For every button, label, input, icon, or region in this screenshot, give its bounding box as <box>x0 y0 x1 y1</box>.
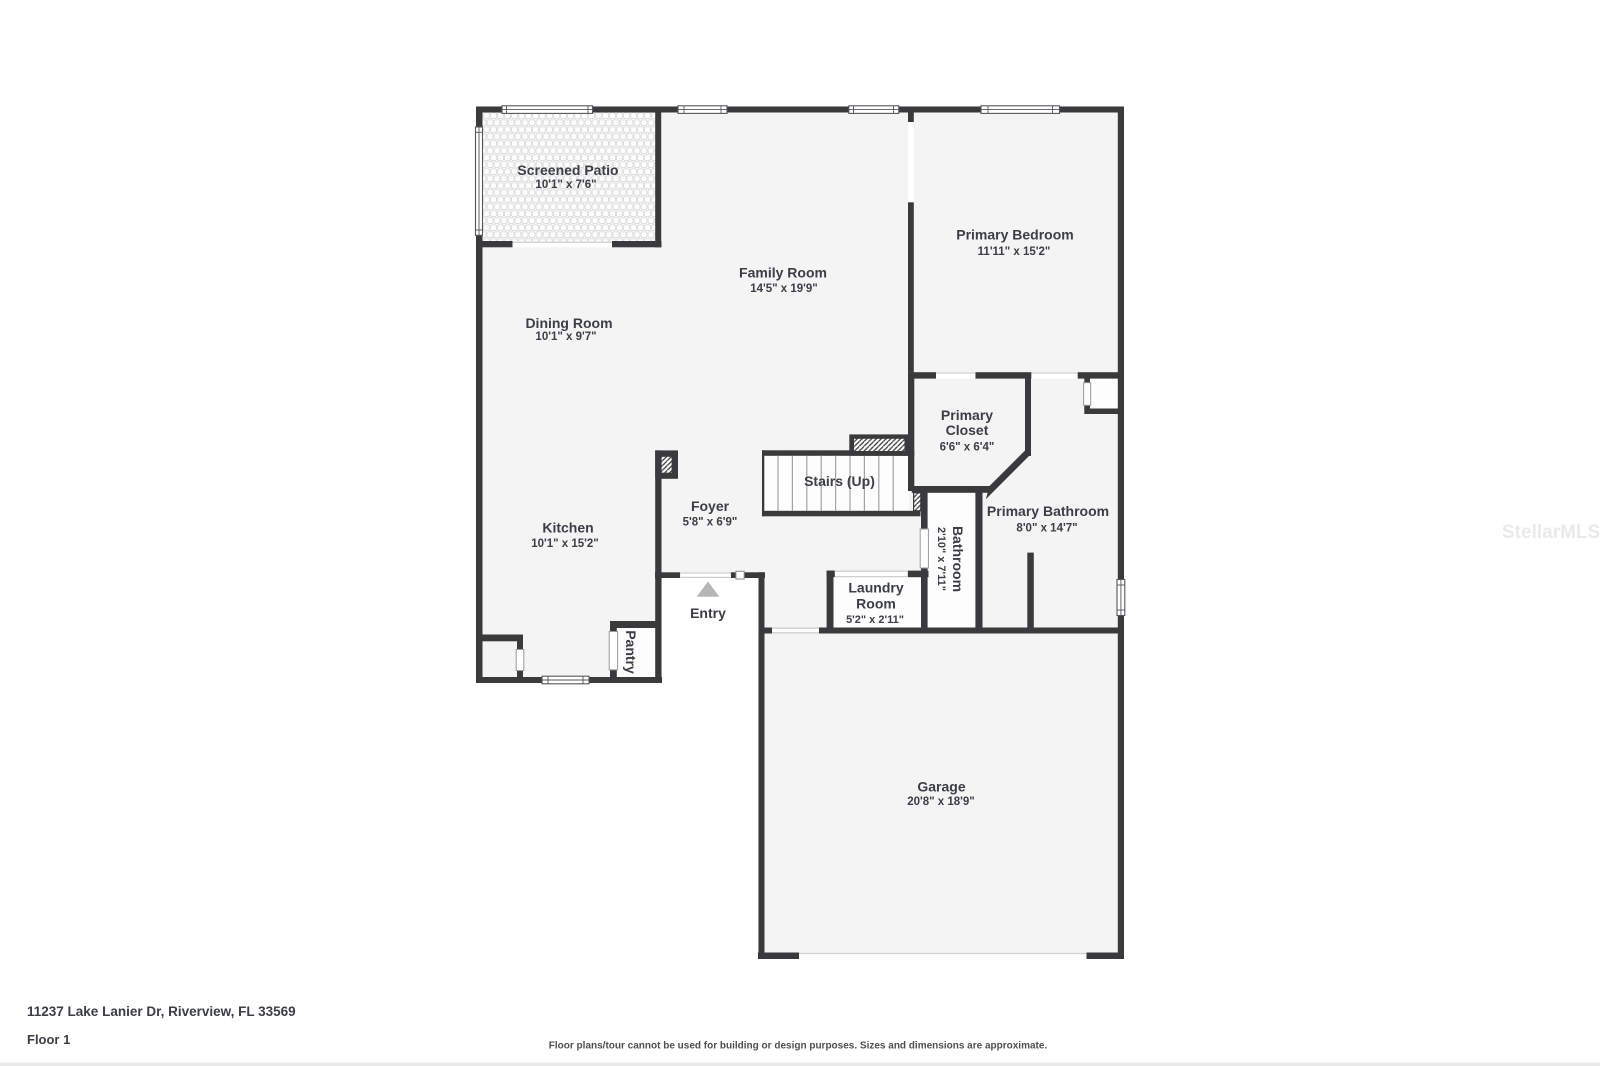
svg-text:Laundry: Laundry <box>848 580 903 596</box>
svg-text:Dining Room: Dining Room <box>525 315 612 331</box>
svg-text:11'11" x 15'2": 11'11" x 15'2" <box>978 246 1051 258</box>
svg-text:Primary: Primary <box>941 407 993 423</box>
svg-text:10'1" x 7'6": 10'1" x 7'6" <box>535 179 596 191</box>
svg-text:Primary Bathroom: Primary Bathroom <box>987 503 1109 519</box>
svg-text:Kitchen: Kitchen <box>542 520 593 536</box>
svg-text:Floor plans/tour cannot be use: Floor plans/tour cannot be used for buil… <box>549 1041 1048 1052</box>
svg-text:Screened Patio: Screened Patio <box>517 162 618 178</box>
svg-text:Room: Room <box>856 596 896 612</box>
svg-text:Foyer: Foyer <box>691 498 730 514</box>
svg-text:14'5" x 19'9": 14'5" x 19'9" <box>750 283 818 295</box>
svg-text:Primary Bedroom: Primary Bedroom <box>956 227 1073 243</box>
svg-text:Closet: Closet <box>946 422 989 438</box>
svg-text:5'8" x 6'9": 5'8" x 6'9" <box>683 517 738 529</box>
svg-text:Garage: Garage <box>917 779 965 795</box>
svg-text:8'0" x 14'7": 8'0" x 14'7" <box>1016 523 1077 535</box>
svg-text:Entry: Entry <box>690 605 726 621</box>
svg-text:5'2" x 2'11": 5'2" x 2'11" <box>846 614 904 626</box>
svg-text:10'1" x 9'7": 10'1" x 9'7" <box>535 331 596 343</box>
svg-text:11237 Lake Lanier Dr, Rivervie: 11237 Lake Lanier Dr, Riverview, FL 3356… <box>27 1004 296 1019</box>
svg-text:2'10" x 7'11": 2'10" x 7'11" <box>935 527 947 591</box>
svg-text:6'6" x 6'4": 6'6" x 6'4" <box>940 442 995 454</box>
svg-text:Pantry: Pantry <box>623 630 639 674</box>
svg-text:Bathroom: Bathroom <box>950 526 966 592</box>
svg-text:Family Room: Family Room <box>739 265 827 281</box>
svg-text:StellarMLS: StellarMLS <box>1502 522 1600 543</box>
svg-text:Floor 1: Floor 1 <box>27 1032 70 1047</box>
svg-text:20'8" x 18'9": 20'8" x 18'9" <box>907 796 975 808</box>
svg-text:Stairs (Up): Stairs (Up) <box>804 473 875 489</box>
svg-text:10'1" x 15'2": 10'1" x 15'2" <box>531 538 599 550</box>
